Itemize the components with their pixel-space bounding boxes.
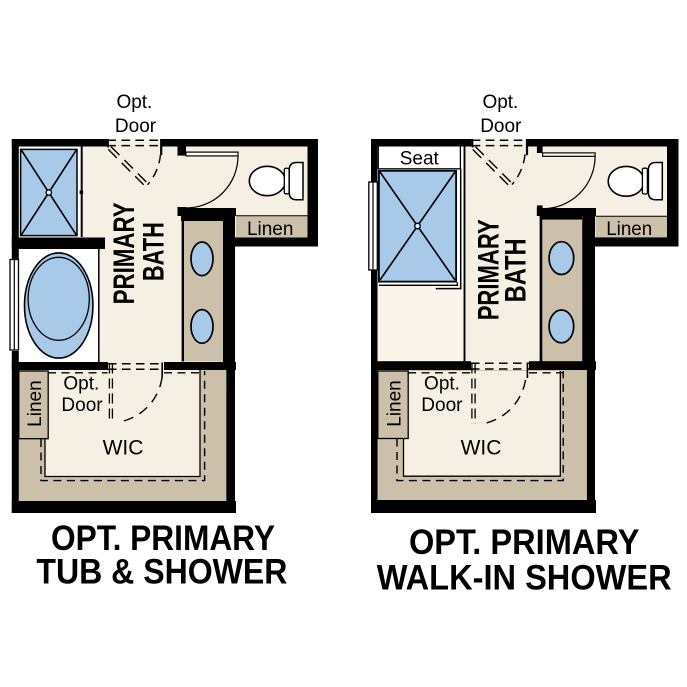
svg-text:WALK-IN SHOWER: WALK-IN SHOWER (377, 559, 672, 598)
svg-text:PRIMARY: PRIMARY (108, 202, 141, 304)
svg-text:Linen: Linen (385, 380, 406, 427)
svg-text:Door: Door (61, 395, 103, 416)
svg-text:WIC: WIC (461, 436, 502, 459)
svg-text:Opt.: Opt. (116, 92, 152, 113)
svg-text:BATH: BATH (137, 222, 170, 281)
svg-text:Linen: Linen (606, 219, 652, 240)
svg-text:Seat: Seat (400, 148, 440, 169)
svg-text:OPT. PRIMARY: OPT. PRIMARY (409, 523, 640, 562)
svg-text:Linen: Linen (25, 380, 46, 427)
svg-text:Door: Door (480, 116, 522, 137)
svg-text:TUB & SHOWER: TUB & SHOWER (36, 553, 287, 592)
svg-text:Door: Door (115, 116, 157, 137)
svg-text:Linen: Linen (247, 219, 294, 240)
svg-text:Door: Door (421, 395, 463, 416)
svg-text:Opt.: Opt. (63, 373, 99, 394)
svg-text:WIC: WIC (103, 436, 144, 459)
svg-text:Opt.: Opt. (424, 373, 460, 394)
svg-text:BATH: BATH (500, 238, 533, 302)
svg-text:Opt.: Opt. (482, 92, 518, 113)
